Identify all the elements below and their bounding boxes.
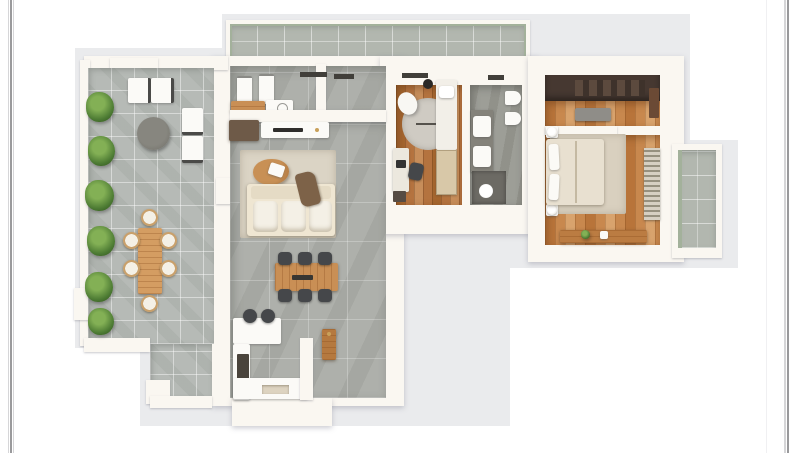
- plant: [88, 308, 114, 335]
- office-closet: [436, 150, 457, 195]
- oven: [237, 354, 249, 380]
- bedside-lamp: [547, 205, 557, 215]
- dining-chair: [278, 252, 292, 265]
- apartment-kitchen-bulge: [232, 398, 332, 426]
- duvet-fold: [575, 141, 577, 203]
- plant: [88, 136, 115, 166]
- bar-stool: [261, 309, 275, 323]
- closet-side-cabinet: [649, 88, 659, 118]
- sofa-cushion: [281, 201, 306, 232]
- side-balcony-floor: [678, 150, 716, 248]
- vanity-sink: [473, 116, 491, 137]
- dark-cabinet: [229, 120, 259, 141]
- outdoor-dining-table: [138, 228, 162, 294]
- drawer-unit: [393, 191, 406, 202]
- office-window-lintel: [402, 73, 428, 78]
- desk: [393, 148, 409, 192]
- plant: [85, 180, 114, 211]
- shower-drain: [479, 184, 493, 198]
- dining-chair: [318, 289, 332, 302]
- plant: [85, 272, 113, 302]
- page-left-edge-line-inner: [13, 0, 14, 453]
- wicker-chair: [123, 260, 140, 277]
- bath-window-lintel: [488, 75, 504, 80]
- wicker-chair: [160, 232, 177, 249]
- bedside-lamp: [547, 127, 557, 137]
- plant: [86, 92, 114, 122]
- terrace-bottom-wall: [84, 338, 150, 352]
- bed-pillow: [548, 174, 559, 200]
- floor-plan-page: [0, 0, 800, 453]
- dining-chair: [278, 289, 292, 302]
- dresser-plant: [581, 230, 590, 239]
- vanity-sink: [473, 146, 491, 167]
- plant: [87, 226, 115, 256]
- cabinet-knob: [327, 332, 331, 336]
- table-runner: [292, 275, 313, 280]
- console-knob: [315, 128, 319, 132]
- terrace-walkway-end-wall: [150, 396, 212, 408]
- bed-pillow: [439, 86, 454, 98]
- closet-bench: [575, 108, 611, 121]
- bar-stool: [243, 309, 257, 323]
- lounge-chair: [182, 108, 203, 135]
- dining-chair: [298, 252, 312, 265]
- wicker-chair: [141, 295, 158, 312]
- sofa-cushion: [253, 201, 278, 232]
- toilet: [505, 91, 521, 105]
- lounge-chair: [128, 78, 151, 103]
- counter-recess: [262, 385, 289, 394]
- dresser-box: [600, 231, 608, 239]
- tv: [273, 128, 303, 132]
- bidet: [505, 112, 521, 125]
- dining-chair: [318, 252, 332, 265]
- page-right-edge-line: [784, 0, 786, 453]
- page-right-faint-line: [766, 0, 767, 453]
- page-left-edge-line: [8, 0, 9, 453]
- terrace-round-table: [137, 117, 170, 150]
- lounge-chair: [182, 136, 203, 163]
- page-left-edge-line-dark: [10, 0, 12, 453]
- kitchen-peninsula: [233, 318, 281, 344]
- closet-hanging-clothes: [575, 80, 645, 96]
- wicker-chair: [160, 260, 177, 277]
- wicker-chair: [141, 209, 158, 226]
- kitchen-east-wall: [300, 338, 313, 400]
- hall-window-lintel: [300, 72, 327, 77]
- wicker-chair: [123, 232, 140, 249]
- shelf-wardrobe: [644, 148, 660, 220]
- upper-balcony-floor: [230, 24, 526, 58]
- lounge-chair: [151, 78, 174, 103]
- hall-window-lintel: [334, 74, 354, 79]
- waste-bin: [423, 79, 433, 89]
- dining-chair: [298, 289, 312, 302]
- page-right-edge-line-dark: [787, 0, 789, 453]
- sofa-cushion: [309, 201, 332, 232]
- bed-pillow: [548, 144, 559, 170]
- laptop: [396, 160, 406, 168]
